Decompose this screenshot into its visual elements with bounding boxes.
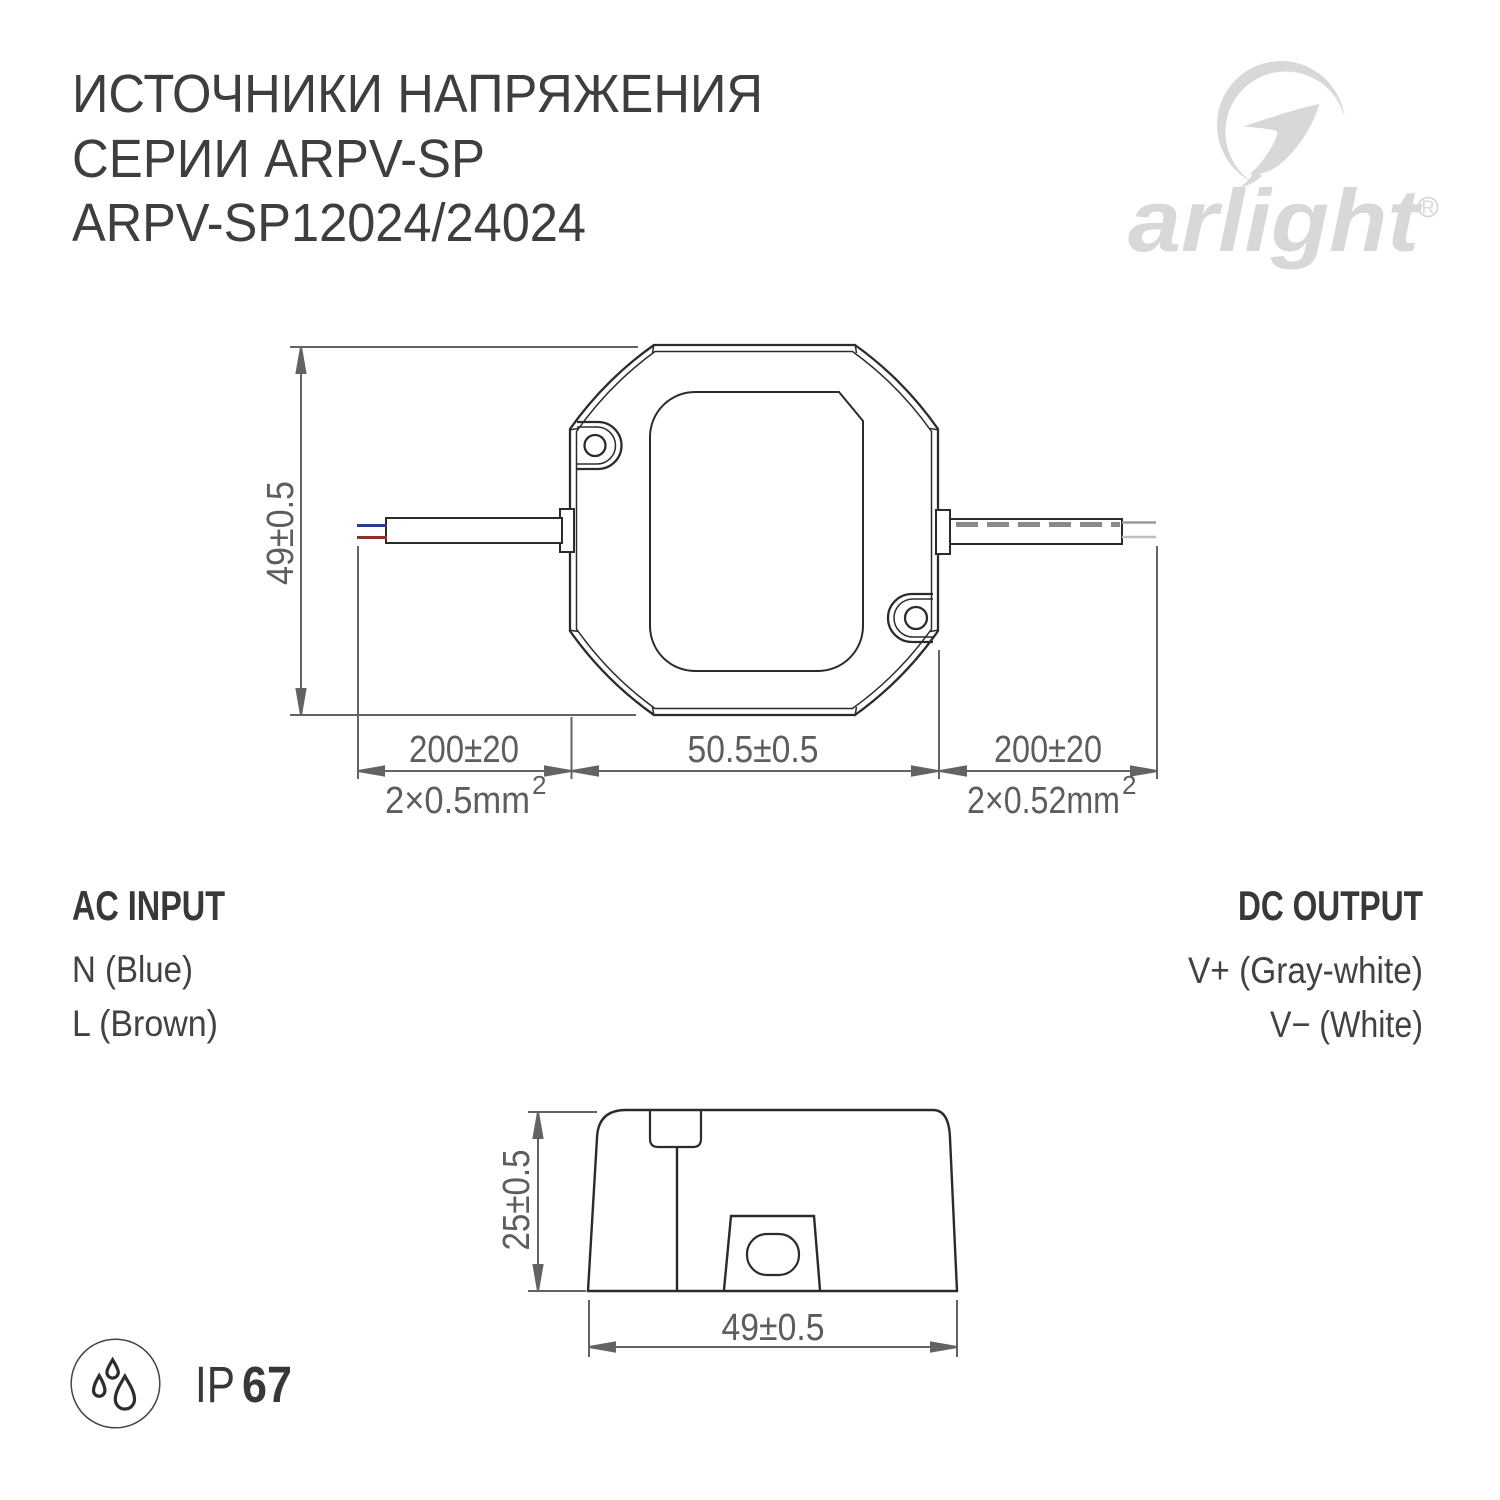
- svg-text:2×0.52mm: 2×0.52mm: [967, 780, 1120, 822]
- svg-text:67: 67: [242, 1356, 292, 1413]
- svg-text:49±0.5: 49±0.5: [260, 481, 302, 585]
- svg-text:DC OUTPUT: DC OUTPUT: [1238, 882, 1423, 929]
- svg-text:N (Blue): N (Blue): [72, 949, 193, 990]
- svg-text:ИСТОЧНИКИ НАПРЯЖЕНИЯ: ИСТОЧНИКИ НАПРЯЖЕНИЯ: [72, 64, 763, 124]
- svg-text:AC INPUT: AC INPUT: [72, 882, 225, 929]
- svg-text:V− (White): V− (White): [1270, 1004, 1423, 1045]
- svg-text:2: 2: [1122, 770, 1136, 800]
- svg-text:25±0.5: 25±0.5: [496, 1150, 538, 1251]
- svg-text:IP: IP: [195, 1356, 235, 1413]
- svg-text:49±0.5: 49±0.5: [722, 1307, 825, 1349]
- svg-text:V+ (Gray-white): V+ (Gray-white): [1188, 950, 1423, 991]
- svg-text:50.5±0.5: 50.5±0.5: [688, 729, 819, 771]
- svg-text:ARPV-SP12024/24024: ARPV-SP12024/24024: [72, 193, 586, 253]
- svg-text:2: 2: [532, 770, 546, 800]
- svg-text:СЕРИИ ARPV-SP: СЕРИИ ARPV-SP: [72, 129, 485, 189]
- svg-text:200±20: 200±20: [409, 729, 519, 771]
- svg-text:200±20: 200±20: [994, 729, 1102, 771]
- svg-text:L (Brown): L (Brown): [72, 1003, 218, 1044]
- svg-text:R: R: [1422, 198, 1435, 218]
- svg-text:2×0.5mm: 2×0.5mm: [385, 780, 530, 822]
- svg-text:arlight: arlight: [1128, 171, 1423, 270]
